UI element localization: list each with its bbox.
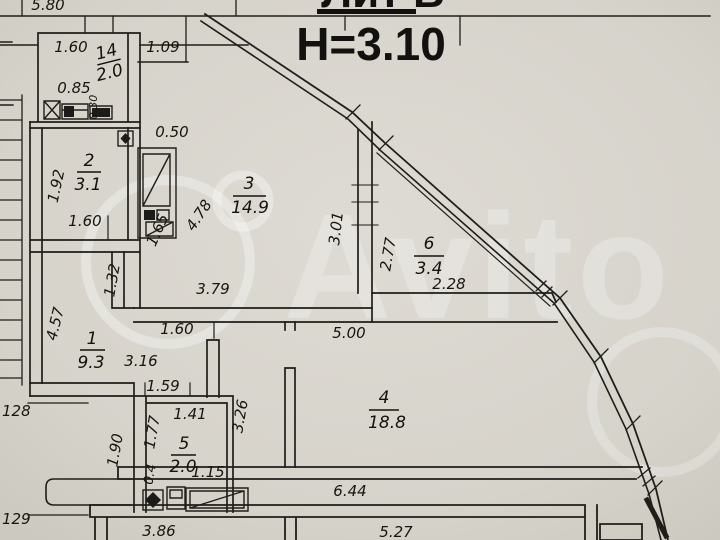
dim-top-580: 5.80 [31, 0, 64, 14]
dim-r1-316: 3.16 [124, 352, 157, 370]
floor-plan-photo: Avito Лит В Н=3.10 [0, 0, 720, 540]
room-number: 2 [84, 151, 95, 171]
plan-titles: Лит В Н=3.10 [296, 0, 446, 70]
dim-r3-379: 3.79 [196, 280, 229, 298]
building-label-text: Лит В [321, 0, 444, 17]
building-label-underline [317, 9, 416, 14]
room-area: 18.8 [368, 413, 406, 433]
dim-r3-050: 0.50 [155, 123, 188, 141]
room-area: 3.1 [74, 175, 101, 195]
room-number: 4 [379, 388, 390, 408]
room-number: 6 [424, 234, 435, 254]
room-area: 14.9 [231, 198, 269, 218]
room-number: 3 [244, 174, 255, 194]
dim-mid-160: 1.60 [160, 320, 193, 338]
room-number: 1 [87, 329, 98, 349]
ceiling-height-text: Н=3.10 [296, 18, 446, 70]
dim-wc-085: 0.85 [57, 79, 90, 97]
dim-r5-141: 1.41 [173, 405, 206, 423]
dim-r2-160: 1.60 [68, 212, 101, 230]
dim-wc-030: 0.30 [87, 95, 100, 120]
floor-plan-drawing: Avito Лит В Н=3.10 [0, 0, 720, 540]
level-mark-128: 128 [2, 402, 31, 420]
dim-r4-644: 6.44 [333, 482, 366, 500]
dim-bottom-527: 5.27 [379, 523, 413, 540]
dim-top-160: 1.60 [54, 38, 87, 56]
dim-bottom-386: 3.86 [142, 522, 175, 540]
dim-r6-228: 2.28 [432, 275, 465, 293]
room-number: 5 [179, 434, 190, 454]
dim-top-109: 1.09 [146, 38, 179, 56]
room-area: 9.3 [77, 353, 104, 373]
dim-r5-115: 1.15 [191, 463, 224, 481]
dim-mid-500: 5.00 [332, 324, 365, 342]
dim-r1-159: 1.59 [146, 377, 179, 395]
level-mark-129: 129 [2, 510, 31, 528]
